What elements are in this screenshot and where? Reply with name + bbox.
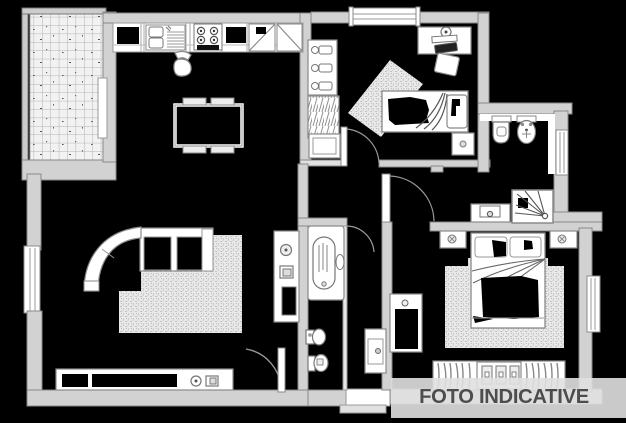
svg-text:FOTO INDICATIVE: FOTO INDICATIVE bbox=[419, 386, 589, 408]
